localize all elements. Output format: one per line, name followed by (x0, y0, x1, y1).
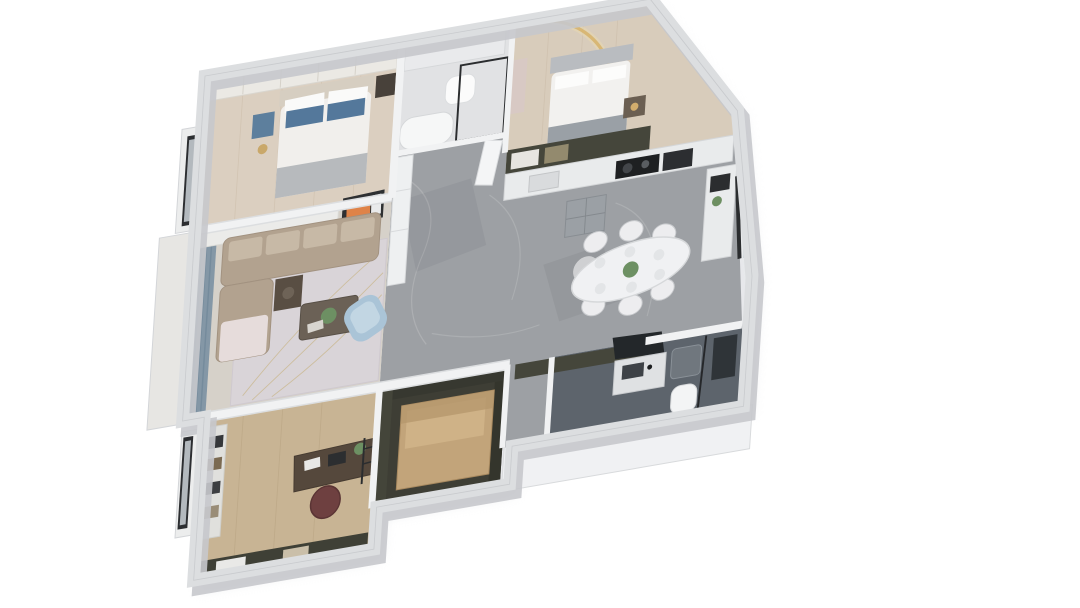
nightstand-blue (252, 111, 275, 139)
floorplan-group (136, 0, 780, 601)
bath2-storage-dark (711, 334, 737, 380)
bath2-shower-tray (670, 344, 702, 379)
apartment-3d-floorplan (0, 0, 1080, 608)
floorplan-render-stage (0, 0, 1080, 608)
nightstand-dark (375, 73, 396, 98)
